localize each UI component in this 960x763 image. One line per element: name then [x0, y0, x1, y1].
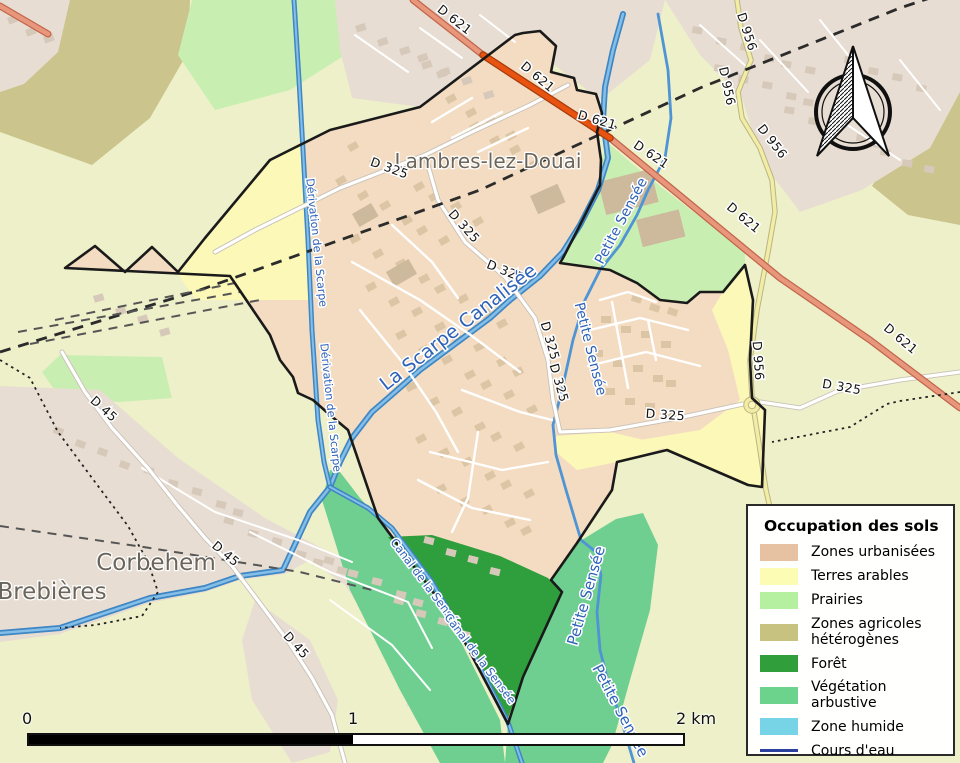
legend-item: Prairies — [760, 592, 941, 609]
legend-swatch — [760, 687, 798, 704]
road-label: D 956 — [750, 340, 768, 380]
legend-item: Végétation arbustive — [760, 679, 941, 711]
legend-item: Zone humide — [760, 718, 941, 735]
legend-title: Occupation des sols — [764, 517, 941, 535]
legend-swatch — [760, 568, 798, 585]
legend-item: Zones agricoles hétérogènes — [760, 616, 941, 648]
place-label: Lambres-lez-Douai — [394, 149, 581, 173]
legend-swatch — [760, 655, 798, 672]
road-label: D 325 — [645, 406, 685, 424]
legend-item: Zones urbanisées — [760, 544, 941, 561]
legend-swatch — [760, 742, 798, 759]
scalebar-label-end: 2 km — [676, 709, 716, 728]
legend-item: Cours d'eau — [760, 742, 941, 759]
map-screenshot: Lambres-lez-Douai Corbehem Brebières D 6… — [0, 0, 960, 763]
legend-swatch — [760, 718, 798, 735]
legend-item: Forêt — [760, 655, 941, 672]
legend-swatch — [760, 544, 798, 561]
scalebar-label-middle: 1 — [348, 709, 358, 728]
place-label: Brebières — [0, 579, 107, 605]
place-label: Corbehem — [96, 550, 215, 576]
scalebar — [27, 733, 685, 746]
scalebar-label-start: 0 — [22, 709, 32, 728]
legend-item: Terres arables — [760, 568, 941, 585]
legend-panel: Occupation des sols Zones urbanisées Ter… — [746, 504, 955, 756]
legend-swatch — [760, 592, 798, 609]
legend-swatch — [760, 624, 798, 641]
